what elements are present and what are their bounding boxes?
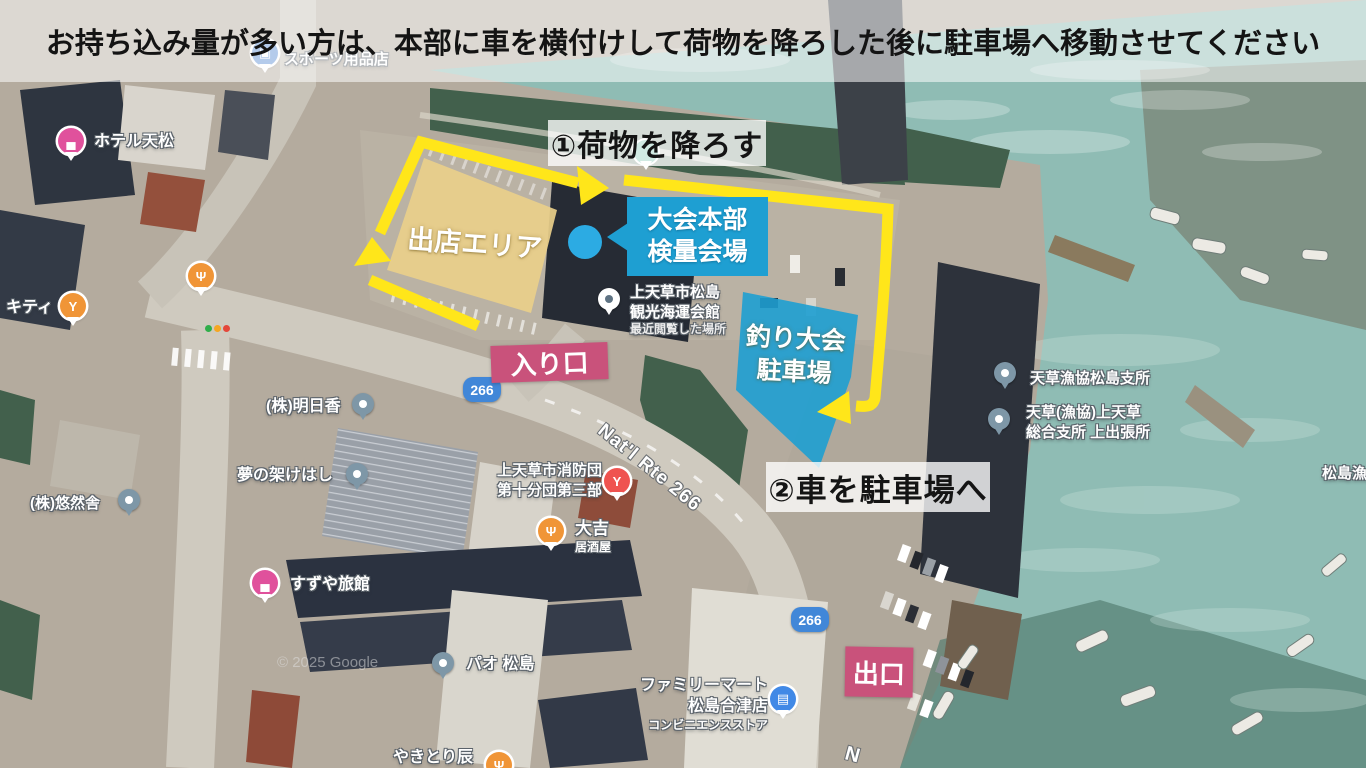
instruction-banner: お持ち込み量が多い方は、本部に車を横付けして荷物を降ろした後に駐車場へ移動させて… — [0, 0, 1366, 82]
hq-line2: 検量会場 — [627, 237, 768, 268]
hq-weighin-box: 大会本部 検量会場 — [627, 197, 768, 276]
unload-spot-dot — [568, 225, 602, 259]
vendor-area-label: 出店エリア — [404, 217, 546, 266]
callout-arrow-left — [607, 223, 628, 251]
instruction-text: お持ち込み量が多い方は、本部に車を横付けして荷物を降ろした後に駐車場へ移動させて… — [46, 20, 1320, 62]
step2-move-car-label: ②車を駐車場へ — [766, 462, 990, 512]
exit-label: 出口 — [845, 646, 914, 697]
step1-unload-label: ①荷物を降ろす — [548, 120, 766, 166]
event-guide-map: ▣ スポーツ用品店 ▄ ホテル天松 キティ Y Ψ (株)明日香 夢の架けはし … — [0, 0, 1366, 768]
parking-zone-label: 釣り大会 駐車場 — [736, 320, 853, 391]
parking-line1: 釣り大会 — [745, 322, 846, 355]
hq-line1: 大会本部 — [627, 205, 768, 236]
parking-line2: 駐車場 — [756, 356, 832, 388]
annotation-labels: ①荷物を降ろす ②車を駐車場へ 出店エリア 大会本部 検量会場 釣り大会 駐車場… — [0, 0, 1366, 768]
entrance-label: 入り口 — [490, 342, 608, 383]
